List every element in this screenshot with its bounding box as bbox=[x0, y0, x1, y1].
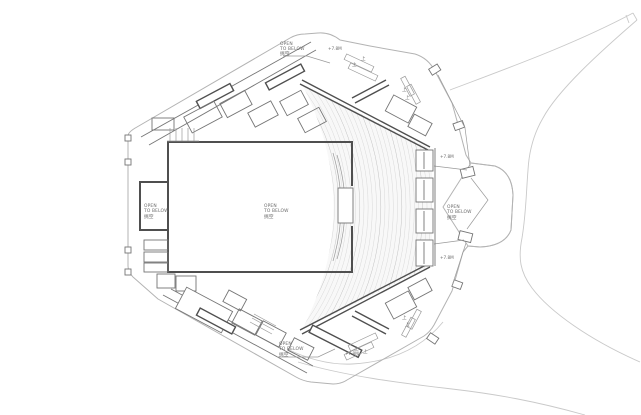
stair-up-label: 上 bbox=[405, 321, 410, 328]
column-marker bbox=[427, 333, 439, 344]
elevation-label-top: +7.8M bbox=[328, 46, 342, 51]
column-marker bbox=[453, 121, 465, 131]
open-to-below-label-lobby: OPEN TO BELOW 挑空 bbox=[446, 204, 472, 221]
stair-up-label: 上 bbox=[405, 94, 410, 101]
vomitory-lower bbox=[352, 311, 389, 334]
svg-text:挑空: 挑空 bbox=[144, 213, 154, 220]
svg-text:TO BELOW: TO BELOW bbox=[263, 208, 289, 214]
stage-house bbox=[140, 118, 352, 291]
svg-text:挑空: 挑空 bbox=[279, 351, 289, 358]
vomitory-upper bbox=[352, 80, 389, 103]
stair-up-label: 上 bbox=[402, 86, 407, 93]
column-marker bbox=[125, 159, 131, 165]
open-to-below-label-top: OPEN TO BELOW 挑空 bbox=[279, 41, 305, 57]
svg-text:TO BELOW: TO BELOW bbox=[143, 208, 169, 214]
elevation-label-right-upper: +7.8M bbox=[440, 154, 454, 159]
column-marker bbox=[125, 135, 131, 141]
open-to-below-label-side-stage: OPEN TO BELOW 挑空 bbox=[143, 203, 169, 220]
stair-up-label: 上 bbox=[354, 345, 359, 352]
stair-up-label: 上 bbox=[402, 314, 407, 321]
stair-up-label: 上 bbox=[352, 61, 357, 68]
open-to-below-label-bottom: OPEN TO BELOW 挑空 bbox=[278, 341, 304, 358]
svg-text:TO BELOW: TO BELOW bbox=[278, 346, 304, 352]
svg-text:挑空: 挑空 bbox=[447, 214, 457, 221]
column-marker bbox=[429, 64, 441, 75]
skylight-band bbox=[196, 84, 233, 109]
stair-up-label: 上 bbox=[361, 55, 366, 62]
open-to-below-label-stage: OPEN TO BELOW 挑空 bbox=[263, 203, 289, 220]
svg-text:挑空: 挑空 bbox=[280, 50, 290, 57]
elevation-label-right-lower: +7.8M bbox=[440, 255, 454, 260]
floor-plan-drawing: OPEN TO BELOW 挑空 OPEN TO BELOW 挑空 OPEN T… bbox=[0, 0, 641, 415]
door-marker bbox=[460, 166, 475, 178]
svg-text:TO BELOW: TO BELOW bbox=[446, 209, 472, 215]
floor-plan-canvas: OPEN TO BELOW 挑空 OPEN TO BELOW 挑空 OPEN T… bbox=[0, 0, 641, 415]
stair-up-label: 上 bbox=[363, 348, 368, 355]
column-marker bbox=[125, 269, 131, 275]
stage-apron bbox=[338, 188, 353, 223]
svg-text:挑空: 挑空 bbox=[264, 213, 274, 220]
column-marker bbox=[125, 247, 131, 253]
